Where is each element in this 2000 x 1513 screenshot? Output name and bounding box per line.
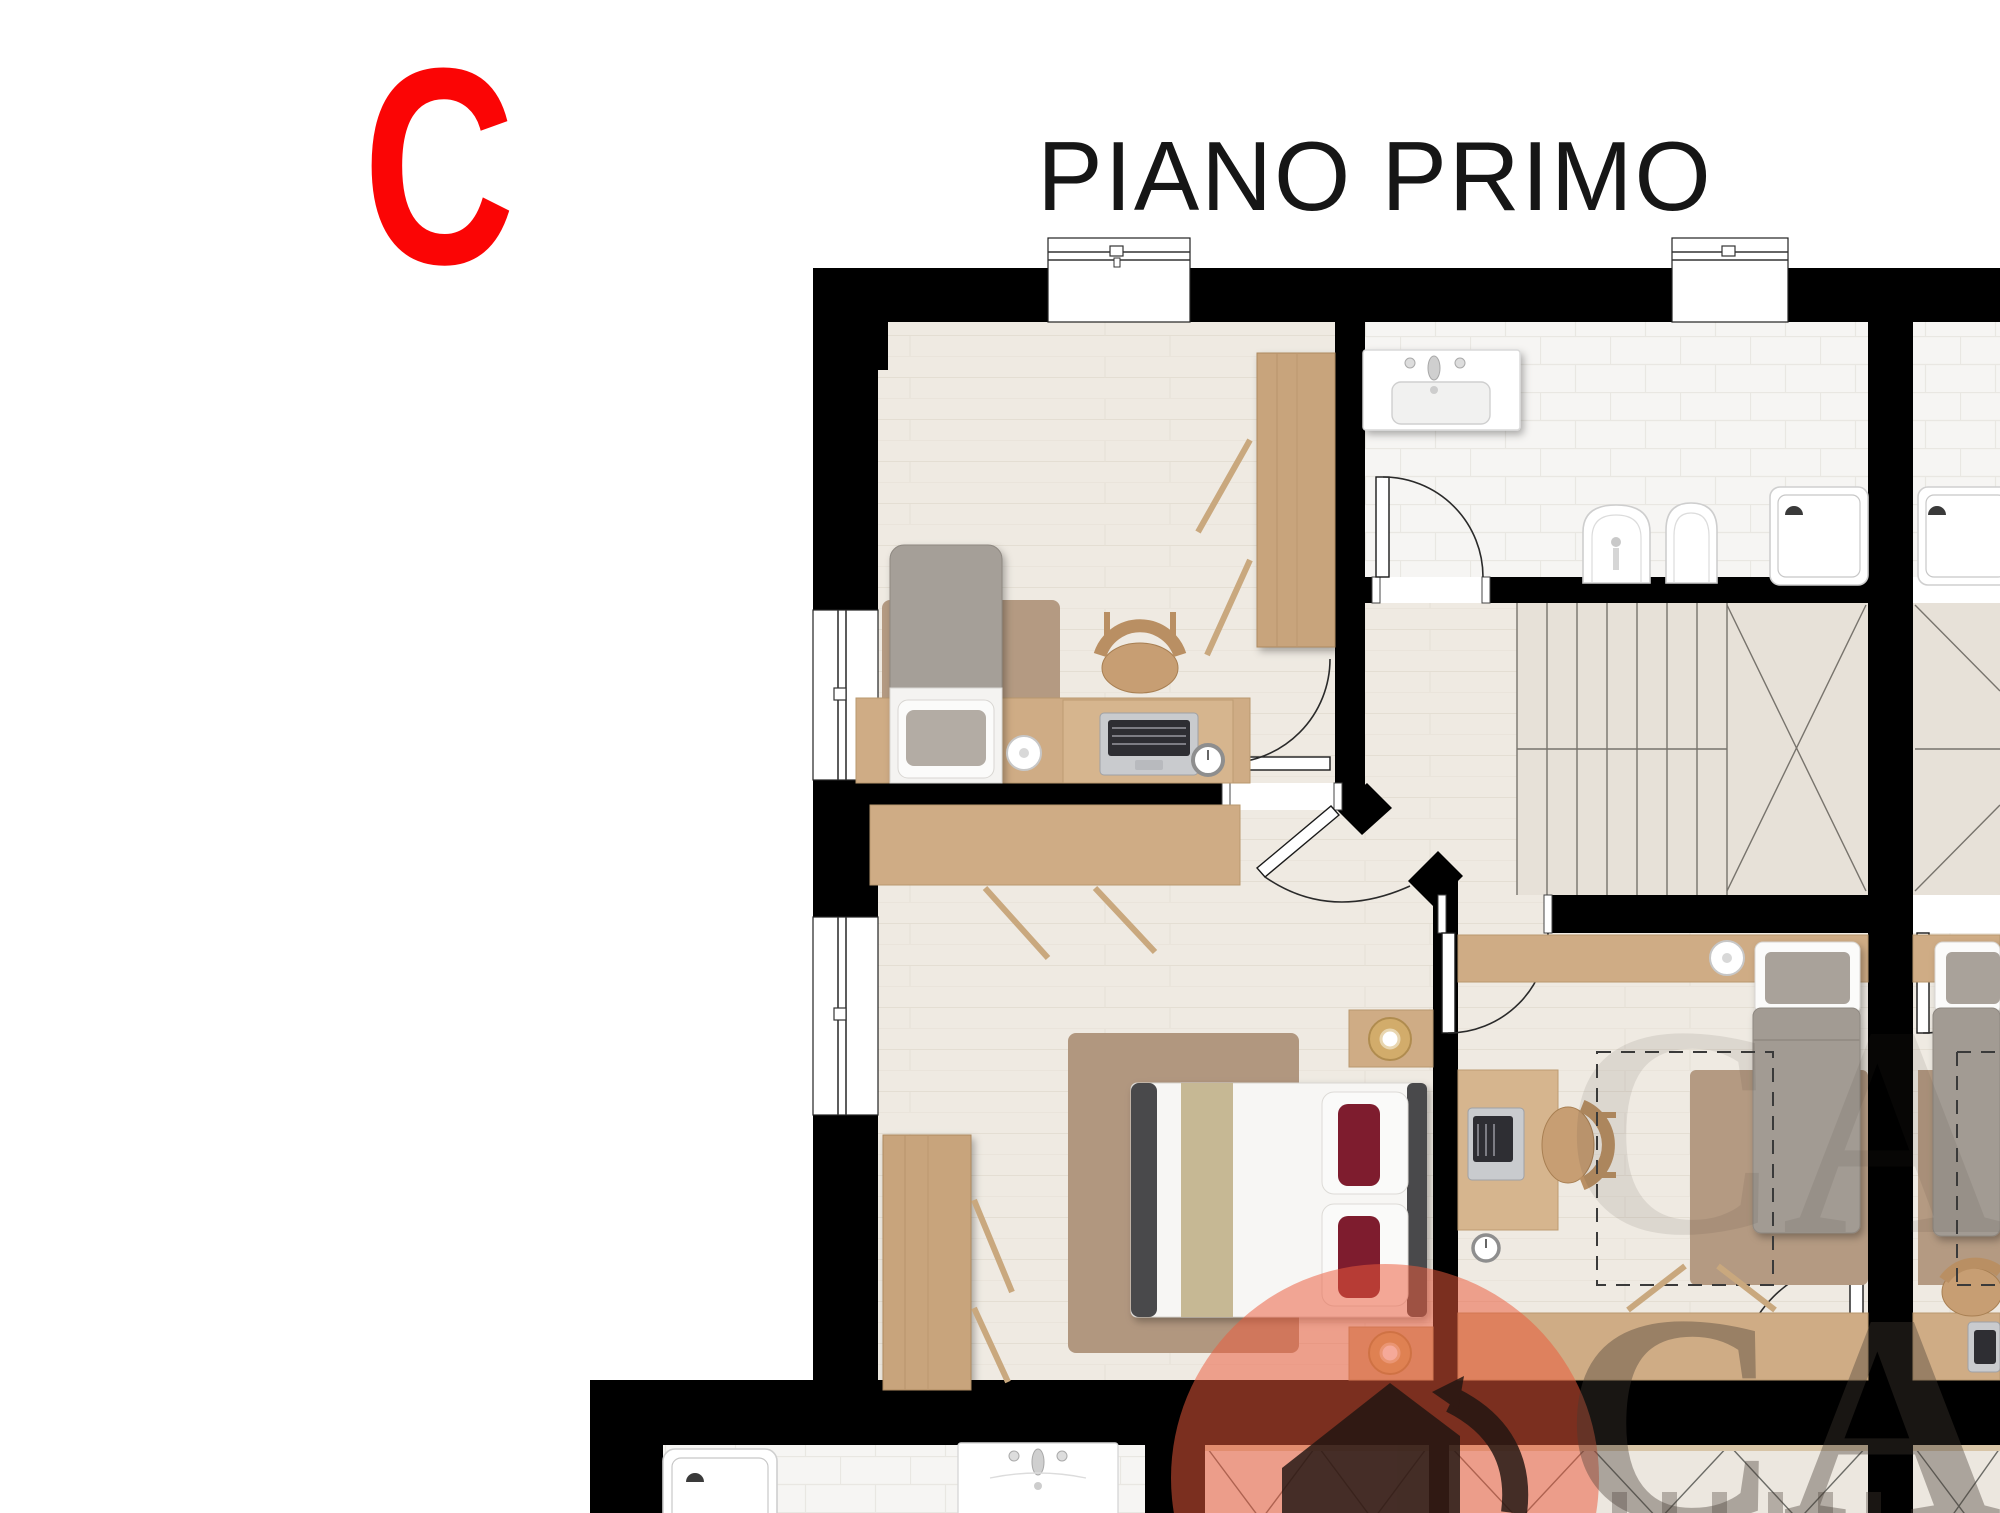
adjacent-shower-tray — [1918, 487, 2000, 585]
bottom-left-wall — [590, 1380, 663, 1513]
floor-plan-page: CA CA C PIANO PRIMO — [0, 0, 2000, 1513]
window-left-bedroom2 — [813, 917, 878, 1115]
window-top-bathroom — [1672, 238, 1788, 322]
vanity-sink — [1363, 350, 1520, 430]
accent-pillow — [1338, 1104, 1380, 1186]
cushion — [906, 710, 986, 766]
runner — [1181, 1083, 1233, 1317]
laptop — [1100, 713, 1198, 775]
watermark-letters-faint: CA — [1562, 965, 2000, 1297]
page-title: PIANO PRIMO — [1037, 121, 1712, 231]
laptop — [1468, 1108, 1524, 1180]
alarm-clock — [1473, 1235, 1499, 1261]
exterior-wall-left — [813, 268, 878, 610]
footboard — [1131, 1083, 1157, 1317]
shower-tray — [663, 1449, 777, 1513]
bidet — [1583, 505, 1650, 583]
wardrobe — [883, 1135, 971, 1390]
sideboard — [870, 805, 1240, 885]
understairs-wall — [1545, 895, 1913, 933]
wardrobe — [1257, 353, 1335, 647]
shower-tray — [1770, 487, 1868, 585]
vanity-sink — [958, 1443, 1118, 1513]
window-top-bedroom1 — [1048, 238, 1190, 322]
alarm-clock — [1193, 745, 1223, 775]
exterior-wall-left — [813, 1115, 878, 1380]
unit-letter: C — [363, 11, 515, 323]
lamp — [1369, 1018, 1411, 1060]
single-bed — [890, 545, 1002, 783]
wall-bedroom1-bathroom — [1335, 322, 1365, 783]
exterior-wall-left — [813, 780, 878, 917]
disc-center — [1019, 748, 1029, 758]
exterior-wall-top — [813, 268, 2000, 322]
watermark-letters: CA — [1562, 1253, 2000, 1513]
lamp-disc-center — [1722, 953, 1732, 963]
toilet — [1666, 503, 1717, 583]
floor-plan-canvas: CA CA C PIANO PRIMO — [0, 0, 2000, 1513]
